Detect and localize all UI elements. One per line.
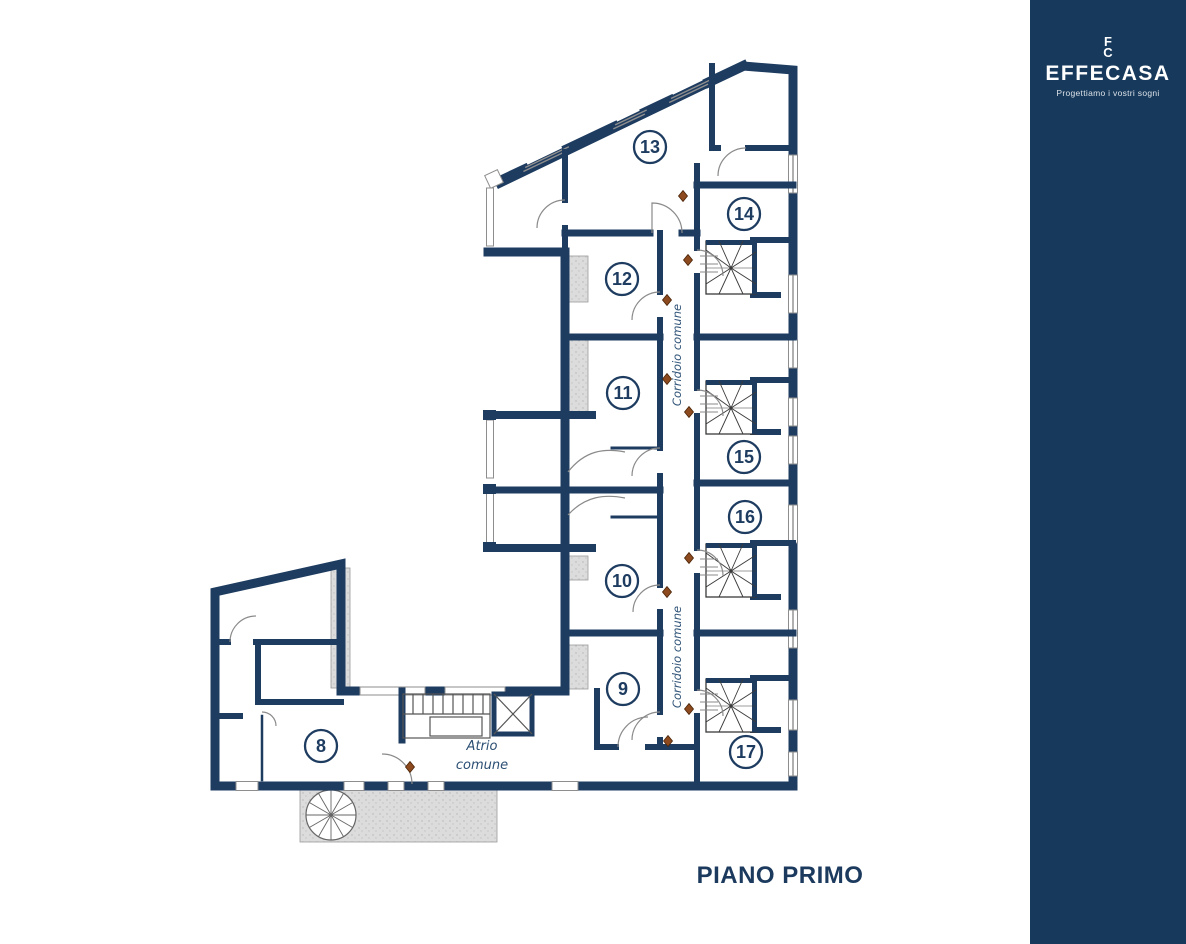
corridor-labels: Corridoio comuneCorridoio comune <box>670 304 684 708</box>
svg-text:10: 10 <box>612 571 632 591</box>
svg-text:11: 11 <box>613 383 632 403</box>
terrace <box>300 788 497 842</box>
svg-text:9: 9 <box>618 679 628 699</box>
door-marker-icons <box>406 191 694 773</box>
brand-sidebar: F C EFFECASA Progettiamo i vostri sogni … <box>1030 0 1186 944</box>
room-number-badge: 14 <box>728 198 760 230</box>
svg-text:14: 14 <box>734 204 754 224</box>
room-number-badges: 891011121314151617 <box>305 131 762 768</box>
svg-text:16: 16 <box>735 507 755 527</box>
svg-text:15: 15 <box>734 447 754 467</box>
brand-name: EFFECASA <box>1030 62 1186 86</box>
key-icon: F C <box>1030 36 1186 58</box>
corridor-label: Corridoio comune <box>670 606 684 708</box>
room-number-badge: 13 <box>634 131 666 163</box>
room-number-badge: 17 <box>730 736 762 768</box>
elevator-icon <box>494 694 532 734</box>
atrium-label: Atriocomune <box>456 739 508 773</box>
room-number-badge: 11 <box>607 377 639 409</box>
svg-text:17: 17 <box>736 742 756 762</box>
room-number-badge: 9 <box>607 673 639 705</box>
floor-title: PIANO PRIMO <box>697 862 864 889</box>
svg-text:8: 8 <box>316 736 326 756</box>
room-number-badge: 15 <box>728 441 760 473</box>
svg-text:12: 12 <box>612 269 632 289</box>
floor-plan: 891011121314151617 Corridoio comuneCorri… <box>0 0 1030 944</box>
room-number-badge: 16 <box>729 501 761 533</box>
brand-tagline: Progettiamo i vostri sogni <box>1030 88 1186 98</box>
screenshot-stage: 891011121314151617 Corridoio comuneCorri… <box>0 0 1186 944</box>
light-shaft-areas <box>331 256 588 689</box>
key-icon-bottom: C <box>1030 47 1186 58</box>
corridor-label: Corridoio comune <box>670 304 684 406</box>
room-number-badge: 8 <box>305 730 337 762</box>
spiral-stair-icon <box>306 790 356 840</box>
stair-icon-main <box>403 694 490 738</box>
room-number-badge: 12 <box>606 263 638 295</box>
svg-text:13: 13 <box>640 137 660 157</box>
room-number-badge: 10 <box>606 565 638 597</box>
